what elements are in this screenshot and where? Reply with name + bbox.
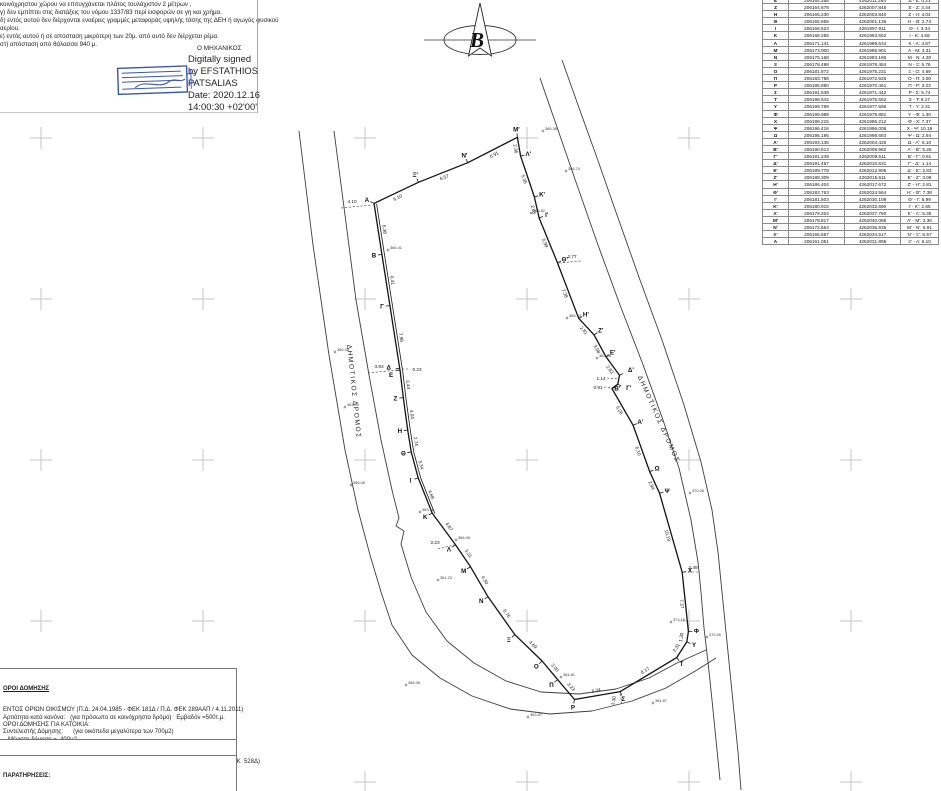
coord-y: 4262017.672 [845, 181, 901, 188]
vertex-tick [466, 159, 468, 163]
table-row: Μ'206178.8174262040.085Λ' - Μ': 2.36 [763, 217, 939, 224]
table-row: Η'206186.4044262017.672Ζ' - Η': 2.81 [763, 181, 939, 188]
grid-cross [192, 127, 214, 149]
spot-elevation-marker [437, 579, 440, 582]
point-name: Ζ' [763, 174, 789, 181]
point-name: Ξ [763, 61, 789, 68]
coord-x: 206168.255 [789, 32, 845, 39]
distance-label: 4.30 [480, 575, 489, 586]
spot-elevation-value: 362.06 [599, 353, 611, 358]
vertex-tick [485, 597, 488, 599]
vertex-tick [660, 492, 664, 493]
point-name: Μ [763, 47, 789, 54]
spot-elevation-value: 366.41 [390, 245, 402, 250]
segment-distance: Ψ - Ω: 2.94 [901, 132, 939, 139]
spot-elevation-value: 370.06 [709, 632, 721, 637]
coord-y: 4262034.517 [845, 231, 901, 238]
coord-y: 4261975.231 [845, 68, 901, 75]
coord-x: 206166.557 [789, 231, 845, 238]
distance-label: 6.57 [439, 173, 450, 181]
point-name: Α [763, 238, 789, 245]
vertex-label: Ξ' [413, 172, 419, 179]
grid-cross [516, 288, 538, 310]
coord-x: 206179.204 [789, 210, 845, 217]
point-name: Κ' [763, 203, 789, 210]
vertex-tick [517, 133, 518, 137]
coord-y: 4261978.881 [845, 111, 901, 118]
spot-elevation-value: 370.06 [692, 488, 704, 493]
table-row: Θ206165.6654262001.135Η - Θ: 2.74 [763, 18, 939, 25]
coord-x: 206164.678 [789, 4, 845, 11]
coord-x: 206193.136 [789, 139, 845, 146]
vertex-label: Η' [583, 312, 589, 319]
spot-elevation-value: 363.16 [422, 507, 434, 512]
coord-y: 4262001.135 [845, 18, 901, 25]
segment-distance: Η' - Θ': 7.38 [901, 189, 939, 196]
area-box: ΕΜΒΑΔΟΝ ΟΙΚΟΠΕΔΟΥΑ,Β,Γ,...,Χ,Ψ,Ω,Α',Β',Γ… [0, 739, 237, 756]
spot-elevation-value: 365.82 [533, 208, 545, 213]
segment-distance: Μ' - Ν': 6.91 [901, 224, 939, 231]
vertex-label: Κ [423, 514, 428, 521]
coord-x: 206185.880 [789, 82, 845, 89]
coord-y: 4262008.982 [845, 146, 901, 153]
spot-elevation-value: 366.06 [408, 680, 420, 685]
distance-label: 5.74 [591, 687, 601, 694]
point-name: Η [763, 11, 789, 18]
coord-y: 4262030.108 [845, 196, 901, 203]
coord-x: 206175.168 [789, 54, 845, 61]
vertex-tick [633, 424, 637, 426]
vertex-tick [539, 661, 542, 664]
table-row: Ρ206185.8804261970.461Π - Ρ: 3.23 [763, 82, 939, 89]
spot-elevation-value: 363.04 [347, 402, 360, 407]
vertex-label: Λ [447, 546, 452, 553]
remarks-heading: ΠΑΡΑΤΗΡΗΣΕΙΣ: [3, 773, 236, 780]
point-name: Κ [763, 32, 789, 39]
coord-x: 206171.141 [789, 40, 845, 47]
point-name: Θ' [763, 189, 789, 196]
road-edge-west-outer [299, 131, 716, 714]
point-name: Γ' [763, 153, 789, 160]
table-row: Ε'206189.7794262012.905Δ' - Ε': 2.83 [763, 167, 939, 174]
segment-distance: Ζ - Η: 4.04 [901, 11, 939, 18]
distance-label: 2.31 [672, 642, 681, 653]
coord-x: 206165.665 [789, 18, 845, 25]
vertex-tick [534, 196, 538, 197]
table-row: Τ206198.5424261975.652Σ - Τ: 8.17 [763, 96, 939, 103]
coord-y: 4261983.186 [845, 54, 901, 61]
segment-distance: Τ - Υ: 2.31 [901, 103, 939, 110]
spot-elevation-marker [455, 539, 458, 542]
grid-cross [678, 127, 700, 149]
vertex-label: Ο [534, 664, 539, 671]
spot-elevation-marker [565, 170, 568, 173]
vertex-tick [594, 333, 597, 335]
coord-x: 206172.664 [789, 224, 845, 231]
grid-cross [516, 771, 538, 791]
spot-elevation-marker [706, 636, 709, 639]
vertex-label: Β' [614, 386, 620, 393]
grid-cross [840, 449, 862, 471]
vertex-tick [687, 642, 691, 644]
vertex-label: Λ' [525, 151, 531, 158]
point-name: Π [763, 75, 789, 82]
coord-x: 206183.788 [789, 75, 845, 82]
coord-y: 4261993.552 [845, 32, 901, 39]
leader-distance-label: 2.49 [688, 565, 698, 570]
vertex-label: Ξ [507, 637, 511, 644]
spot-elevation-value: 366.08 [337, 347, 349, 352]
vertex-label: Η [398, 428, 403, 435]
coord-y: 4262003.840 [845, 11, 901, 18]
spot-elevation-marker [405, 684, 408, 687]
coord-y: 4262032.690 [845, 203, 901, 210]
grid-cross [840, 771, 862, 791]
vertex-label: Κ' [539, 192, 545, 199]
table-row: Ξ'206166.5574262034.517Ν' - Ξ': 6.57 [763, 231, 939, 238]
grid-cross [30, 127, 52, 149]
table-row: Σ206191.5394261971.442Ρ - Σ: 5.74 [763, 89, 939, 96]
grid-cross [354, 449, 376, 471]
point-name: Χ [763, 118, 789, 125]
regulation-line: ΕΝΤΟΣ ΟΡΙΩΝ ΟΙΚΙΣΜΟΥ (Π.Δ. 24.04.1985 - … [3, 707, 236, 714]
coord-x: 206191.539 [789, 89, 845, 96]
point-name: Ν' [763, 224, 789, 231]
grid-cross [192, 449, 214, 471]
segment-distance: Σ - Τ: 8.17 [901, 96, 939, 103]
distance-label: 6.41 [389, 275, 395, 285]
point-name: Α' [763, 139, 789, 146]
parcel-boundary-double [377, 204, 435, 514]
segment-distance: Λ' - Μ': 2.36 [901, 217, 939, 224]
segment-distance: Ν' - Ξ': 6.57 [901, 231, 939, 238]
coord-x: 206181.503 [789, 196, 845, 203]
table-row: Β'206190.5134262008.982Α' - Β': 5.26 [763, 146, 939, 153]
segment-distance: Ρ - Σ: 5.74 [901, 89, 939, 96]
table-row: Ν'206172.6644262036.935Μ' - Ν': 6.91 [763, 224, 939, 231]
segment-distance: Κ' - Λ': 5.35 [901, 210, 939, 217]
spot-elevation-marker [419, 511, 422, 514]
segment-distance: Λ - Μ: 3.31 [901, 47, 939, 54]
grid-cross [354, 610, 376, 632]
segment-distance: Ν - Ξ: 5.76 [901, 61, 939, 68]
table-row: Κ'206180.9154262032.690Ι' - Κ': 2.65 [763, 203, 939, 210]
spot-elevation-marker [334, 351, 337, 354]
coord-y: 4261996.006 [845, 125, 901, 132]
leader-distance-label: 1.14 [596, 376, 606, 381]
grid-cross [192, 288, 214, 310]
segment-distance: Θ' - Ι': 5.99 [901, 196, 939, 203]
regulations-heading: ΟΡΟΙ ΔΟΜΗΣΗΣ [3, 686, 236, 693]
spot-elevation-value: 364.87 [655, 698, 667, 703]
spot-elevation-value: 366.06 [353, 480, 365, 485]
spot-elevation-marker [560, 676, 563, 679]
segment-distance: Χ - Ψ: 10.19 [901, 125, 939, 132]
leader-line [341, 205, 372, 208]
coord-x: 206199.988 [789, 111, 845, 118]
vertex-label: Α [365, 197, 370, 204]
grid-cross [354, 771, 376, 791]
vertex-label: Ω [655, 466, 660, 473]
spot-elevation-value: 365.74 [569, 313, 582, 318]
table-row: Φ206199.9884261978.881Υ - Φ: 1.30 [763, 111, 939, 118]
coord-x: 206190.513 [789, 146, 845, 153]
point-name: Ζ [763, 4, 789, 11]
point-name: Ι' [763, 196, 789, 203]
vertex-label: Υ [692, 642, 697, 649]
vertex-label: Ι' [545, 212, 549, 219]
distance-label: 1.30 [678, 632, 684, 642]
road-edge-east-outer [562, 60, 741, 790]
point-name: Τ [763, 96, 789, 103]
coord-y: 4261975.652 [845, 96, 901, 103]
coord-x: 206188.309 [789, 174, 845, 181]
table-row: Η206165.2304262003.840Ζ - Η: 4.04 [763, 11, 939, 18]
coord-y: 4261978.484 [845, 61, 901, 68]
segment-distance: Π - Ρ: 3.23 [901, 82, 939, 89]
segment-distance: Κ - Λ: 4.87 [901, 40, 939, 47]
distance-label: 7.37 [679, 599, 685, 609]
table-row: Α'206193.1364262004.425Ω - Α': 6.10 [763, 139, 939, 146]
vertex-tick [512, 635, 515, 638]
vertex-tick [399, 398, 403, 399]
spot-elevation-value: 361.23 [440, 575, 452, 580]
spot-elevation-value: 366.36 [545, 126, 557, 131]
vertex-label: Ψ [665, 488, 670, 495]
vertex-label: Δ [387, 364, 392, 371]
table-row: Ν206175.1684261983.186Μ - Ν: 4.30 [763, 54, 939, 61]
vertex-tick [650, 470, 654, 471]
segment-distance: Ε - Ζ: 3.44 [901, 4, 939, 11]
leader-line [607, 378, 618, 379]
segment-distance: Ζ' - Η': 2.81 [901, 181, 939, 188]
coord-y: 4261986.212 [845, 118, 901, 125]
vertex-label: Ρ [571, 704, 575, 711]
coord-y: 4262036.935 [845, 224, 901, 231]
coord-x: 206189.779 [789, 167, 845, 174]
distance-label: 5.76 [502, 608, 512, 619]
vertex-label: Π [549, 682, 554, 689]
vertex-label: Α' [637, 419, 643, 426]
vertex-label: Ζ [393, 396, 397, 403]
spot-elevation-value: 366.06 [458, 535, 470, 540]
leader-line [368, 370, 398, 373]
coord-y: 4262007.845 [845, 4, 901, 11]
vertex-tick [555, 680, 558, 683]
coordinates-table: Ε206164.2684262011.264Δ - Ε: 0.23Ζ206164… [762, 0, 939, 245]
segment-distance: Φ - Χ: 7.37 [901, 118, 939, 125]
vertex-tick [521, 155, 525, 156]
vertex-tick [417, 179, 419, 183]
spot-elevation-marker [527, 716, 530, 719]
vertex-tick [429, 513, 432, 515]
vertex-label: Γ [380, 304, 384, 311]
segment-distance: Μ - Ν: 4.30 [901, 54, 939, 61]
point-name: Ν [763, 54, 789, 61]
point-name: Θ [763, 18, 789, 25]
remarks-box: ΠΑΡΑΤΗΡΗΣΕΙΣ: Το διάγραμμα είναι ενταγμέ… [0, 755, 237, 791]
coord-x: 206166.523 [789, 25, 845, 32]
point-name: Ι [763, 25, 789, 32]
coord-y: 4262024.564 [845, 189, 901, 196]
table-row: Ι206166.5234261997.911Θ - Ι: 3.34 [763, 25, 939, 32]
vertex-label: Ζ' [598, 327, 604, 334]
coord-x: 206173.000 [789, 47, 845, 54]
leader-distance-label: 0.23 [412, 367, 422, 372]
grid-cross [354, 127, 376, 149]
point-name: Μ' [763, 217, 789, 224]
table-row: Λ206171.1414261989.634Κ - Λ: 4.87 [763, 40, 939, 47]
spot-elevation-marker [689, 492, 692, 495]
coord-y: 4261997.911 [845, 25, 901, 32]
spot-elevation-marker [387, 249, 390, 252]
coord-x: 206186.404 [789, 181, 845, 188]
segment-distance: Ι - Κ: 4.69 [901, 32, 939, 39]
coord-x: 206183.763 [789, 189, 845, 196]
regulation-line: Συντελεστής Δόμησης: (για οικόπεδα μεγαλ… [3, 729, 236, 736]
table-row: Υ206199.7894261977.596Τ - Υ: 2.31 [763, 103, 939, 110]
table-row: Ξ206178.4984261978.484Ν - Ξ: 5.76 [763, 61, 939, 68]
table-row: Ζ206164.6784262007.845Ε - Ζ: 3.44 [763, 4, 939, 11]
point-name: Λ' [763, 210, 789, 217]
coord-y: 4262040.085 [845, 217, 901, 224]
survey-drawing-page: ΔΗΜΟΤΙΚΟΣ ΔΡΟΜΟΣΔΗΜΟΤΙΚΟΣ ΔΡΟΜΟΣΑΒΓΔΕΖΗΘ… [0, 0, 941, 791]
coord-y: 4262009.511 [845, 153, 901, 160]
vertex-tick [557, 261, 561, 262]
spot-elevation-value: 366.74 [568, 166, 581, 171]
north-arrow-letter: B [469, 28, 484, 52]
coord-x: 206165.230 [789, 11, 845, 18]
grid-cross [678, 288, 700, 310]
vertex-label: Φ [694, 628, 699, 635]
vertex-label: Ν [479, 598, 484, 605]
coord-y: 4261977.596 [845, 103, 901, 110]
grid-cross [516, 449, 538, 471]
point-name: Ε' [763, 167, 789, 174]
segment-distance: Ξ - Ο: 4.69 [901, 68, 939, 75]
vertex-label: Ν' [461, 152, 467, 159]
vertex-label: Τ [680, 661, 684, 668]
grid-cross [192, 610, 214, 632]
coord-x: 206198.542 [789, 96, 845, 103]
vertex-label: Β [372, 253, 377, 260]
coord-x: 206191.249 [789, 153, 845, 160]
spot-elevation-marker [542, 130, 545, 133]
table-row: Κ206168.2554261993.552Ι - Κ: 4.69 [763, 32, 939, 39]
segment-distance: Υ - Φ: 1.30 [901, 111, 939, 118]
grid-cross [516, 610, 538, 632]
leader-distance-label: 2.77 [567, 254, 577, 259]
grid-cross [840, 288, 862, 310]
distance-label: 2.36 [512, 144, 519, 154]
coord-y: 4262031.895 [845, 238, 901, 245]
distance-label: 7.98 [398, 332, 404, 342]
point-name: Ω [763, 132, 789, 139]
coord-y: 4262015.611 [845, 174, 901, 181]
segment-distance: Β' - Γ': 0.91 [901, 153, 939, 160]
table-row: Ι'206181.5034262030.108Θ' - Ι': 5.99 [763, 196, 939, 203]
spot-elevation-value: 363.87 [530, 712, 542, 717]
vertex-label: Σ [621, 696, 625, 703]
table-row: Χ206199.2154261986.212Φ - Χ: 7.37 [763, 118, 939, 125]
spot-elevation-value: 371.16 [673, 617, 685, 622]
point-name: Υ [763, 103, 789, 110]
table-row: Δ'206191.4574262010.631Γ' - Δ': 1.14 [763, 160, 939, 167]
point-name: Η' [763, 181, 789, 188]
segment-distance: Ε' - Ζ': 3.08 [901, 174, 939, 181]
road-name-label: ΔΗΜΟΤΙΚΟΣ ΔΡΟΜΟΣ [345, 344, 362, 439]
coord-y: 4261986.901 [845, 47, 901, 54]
segment-distance: Ξ' - Α: 6.10 [901, 238, 939, 245]
road-edge-west-inner [334, 131, 706, 694]
leader-distance-label: 0.91 [593, 385, 603, 390]
grid-cross [30, 288, 52, 310]
leader-distance-label: 2.23 [430, 540, 440, 545]
coord-x: 206196.416 [789, 125, 845, 132]
coord-y: 4262012.905 [845, 167, 901, 174]
coord-x: 206181.872 [789, 68, 845, 75]
point-name: Β' [763, 146, 789, 153]
vertex-label: Μ [461, 568, 466, 575]
vertex-tick [620, 374, 624, 376]
table-row: Α206161.0514262031.895Ξ' - Α: 6.10 [763, 238, 939, 245]
segment-distance: Η - Θ: 2.74 [901, 18, 939, 25]
segment-distance: Ο - Π: 3.00 [901, 75, 939, 82]
spot-elevation-marker [596, 357, 599, 360]
vertex-label: Μ' [513, 126, 520, 133]
point-name: Ψ [763, 125, 789, 132]
vertex-tick [414, 478, 418, 479]
table-row: Π206183.7884261972.926Ο - Π: 3.00 [763, 75, 939, 82]
vertex-label: Ι [410, 477, 412, 484]
coord-y: 4261970.461 [845, 82, 901, 89]
vertex-label: Δ' [628, 367, 634, 374]
segment-distance: Γ' - Δ': 1.14 [901, 160, 939, 167]
distance-label: 6.38 [381, 224, 387, 234]
coord-x: 206195.195 [789, 132, 845, 139]
coord-x: 206178.817 [789, 217, 845, 224]
vertex-tick [574, 700, 575, 704]
grid-cross [30, 610, 52, 632]
vertex-tick [407, 452, 411, 453]
spot-elevation-marker [566, 317, 569, 320]
table-row: Ψ206196.4164261996.006Χ - Ψ: 10.19 [763, 125, 939, 132]
spot-elevation-value: 364.81 [563, 672, 575, 677]
vertex-tick [539, 217, 543, 218]
spot-elevation-marker [344, 406, 347, 409]
distance-label: 4.04 [409, 410, 415, 420]
coord-x: 206161.051 [789, 238, 845, 245]
table-row: Λ'206179.2044262037.760Κ' - Λ': 5.35 [763, 210, 939, 217]
coord-y: 4261998.683 [845, 132, 901, 139]
coord-y: 4261972.926 [845, 75, 901, 82]
leader-distance-label: 1.30 [610, 695, 617, 705]
segment-distance: Ω - Α': 6.10 [901, 139, 939, 146]
vertex-tick [386, 305, 390, 306]
segment-distance: Θ - Ι: 3.34 [901, 25, 939, 32]
coord-x: 206199.789 [789, 103, 845, 110]
vertex-tick [370, 202, 374, 204]
coord-y: 4261989.634 [845, 40, 901, 47]
grid-cross [30, 449, 52, 471]
coord-x: 206199.215 [789, 118, 845, 125]
segment-distance: Δ' - Ε': 2.83 [901, 167, 939, 174]
segment-distance: Α' - Β': 5.26 [901, 146, 939, 153]
coord-x: 206180.915 [789, 203, 845, 210]
coord-y: 4262010.631 [845, 160, 901, 167]
point-name: Σ [763, 89, 789, 96]
point-name: Ο [763, 68, 789, 75]
